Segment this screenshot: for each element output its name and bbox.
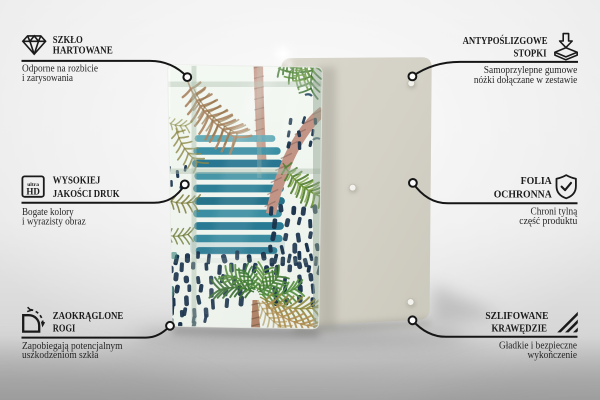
- svg-text:część produktu: część produktu: [519, 216, 577, 227]
- svg-text:ZAOKRĄGLONE: ZAOKRĄGLONE: [53, 311, 124, 322]
- svg-text:SZLIFOWANE: SZLIFOWANE: [485, 311, 548, 322]
- svg-text:ANTYPOŚLIZGOWE: ANTYPOŚLIZGOWE: [463, 35, 548, 47]
- svg-text:uszkodzeniom szkła: uszkodzeniom szkła: [22, 350, 99, 361]
- svg-text:KRAWĘDZIE: KRAWĘDZIE: [492, 324, 548, 335]
- svg-text:WYSOKIEJ: WYSOKIEJ: [53, 175, 101, 186]
- svg-text:i zarysowania: i zarysowania: [22, 73, 74, 84]
- svg-text:nóżki dołączane w zestawie: nóżki dołączane w zestawie: [474, 75, 578, 86]
- svg-text:OCHRONNA: OCHRONNA: [494, 190, 553, 201]
- svg-text:HD: HD: [26, 187, 40, 197]
- svg-text:ROGI: ROGI: [53, 324, 76, 335]
- svg-text:FOLIA: FOLIA: [521, 176, 553, 187]
- svg-text:JAKOŚCI DRUK: JAKOŚCI DRUK: [53, 188, 120, 200]
- svg-text:wykończenie: wykończenie: [528, 350, 578, 361]
- svg-text:HARTOWANE: HARTOWANE: [53, 46, 113, 57]
- svg-text:SZKŁO: SZKŁO: [53, 35, 83, 46]
- svg-text:i wyrazisty obraz: i wyrazisty obraz: [22, 217, 86, 228]
- svg-text:STOPKI: STOPKI: [514, 49, 547, 60]
